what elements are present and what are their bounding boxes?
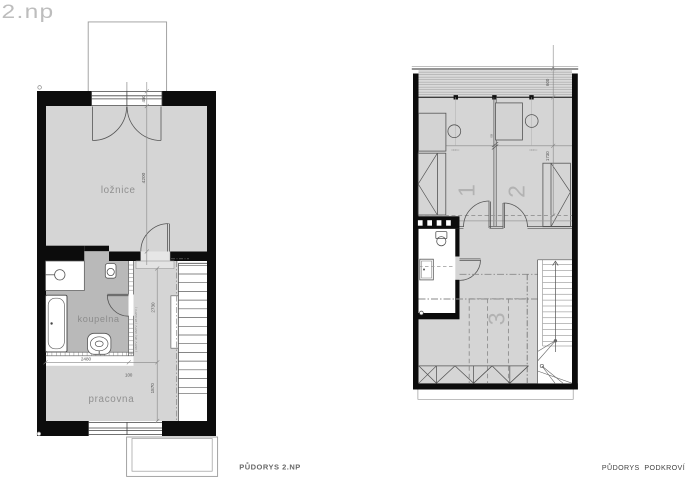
svg-text:2: 2 [504, 185, 530, 198]
svg-text:1870: 1870 [150, 383, 155, 394]
svg-text:100: 100 [125, 373, 133, 378]
svg-text:4200: 4200 [141, 172, 147, 183]
svg-text:PŮDORYS 2.NP: PŮDORYS 2.NP [239, 462, 301, 472]
svg-text:pracovna: pracovna [88, 394, 134, 405]
svg-text:2.np: 2.np [2, 2, 55, 23]
svg-text:PŮDORYS PODKROVÍ: PŮDORYS PODKROVÍ [602, 463, 685, 472]
svg-text:( UMYV. 3B | UMYV. | 3B UMYV.: ( UMYV. 3B | UMYV. | 3B UMYV. ) [134, 307, 138, 352]
svg-text:ODKC: ODKC [451, 148, 459, 152]
svg-text:ODKC: ODKC [529, 148, 537, 152]
svg-text:ložnice: ložnice [101, 185, 136, 196]
svg-text:0B: 0B [490, 134, 494, 138]
svg-text:2730: 2730 [150, 302, 155, 313]
svg-text:1: 1 [453, 184, 479, 197]
svg-text:2480: 2480 [81, 357, 92, 362]
svg-text:koupelna: koupelna [78, 314, 120, 324]
svg-text:600: 600 [545, 78, 550, 86]
svg-text:3: 3 [484, 313, 510, 326]
svg-text:450: 450 [141, 95, 146, 103]
svg-text:1730: 1730 [545, 151, 550, 161]
